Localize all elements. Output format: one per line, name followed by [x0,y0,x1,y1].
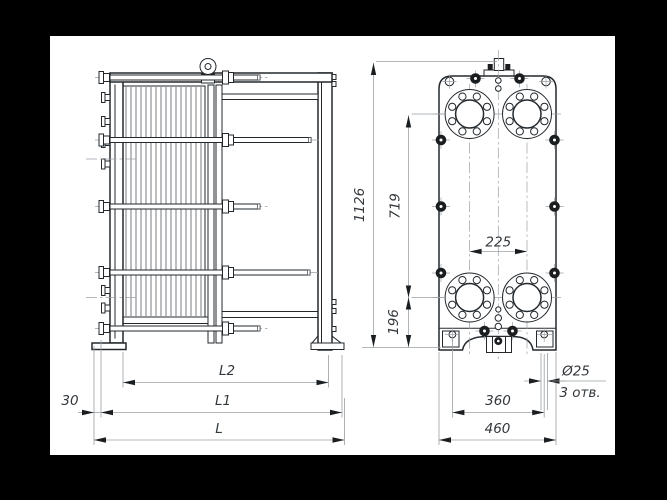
front-view [432,50,564,362]
dim-label-hole-count: 3 отв. [559,385,600,401]
port-flange-top-left [445,90,494,139]
drawing-page: 1126 719 196 225 360 460 [0,0,667,500]
port-flange-bottom-right [503,273,552,322]
fixed-plate-foot [92,343,126,350]
dim-label-1126: 1126 [352,188,368,222]
heat-exchanger-drawing: 1126 719 196 225 360 460 [0,0,667,500]
bottom-guide-bar [123,317,208,324]
dim-label-360: 360 [485,393,511,409]
dim-label-hole-dia: Ø25 [561,364,590,380]
port-flange-top-right [503,90,552,139]
guide-bar-rear [220,312,318,318]
dim-label-225: 225 [485,235,511,251]
dim-label-460: 460 [485,421,511,437]
dim-label-L1: L1 [215,393,231,409]
column-foot [311,343,344,350]
dim-label-719: 719 [388,193,404,219]
port-flange-bottom-left [445,273,494,322]
dim-label-L2: L2 [219,363,235,379]
dim-label-30: 30 [61,393,78,409]
dim-label-196: 196 [386,309,402,335]
dim-label-L: L [215,421,223,437]
